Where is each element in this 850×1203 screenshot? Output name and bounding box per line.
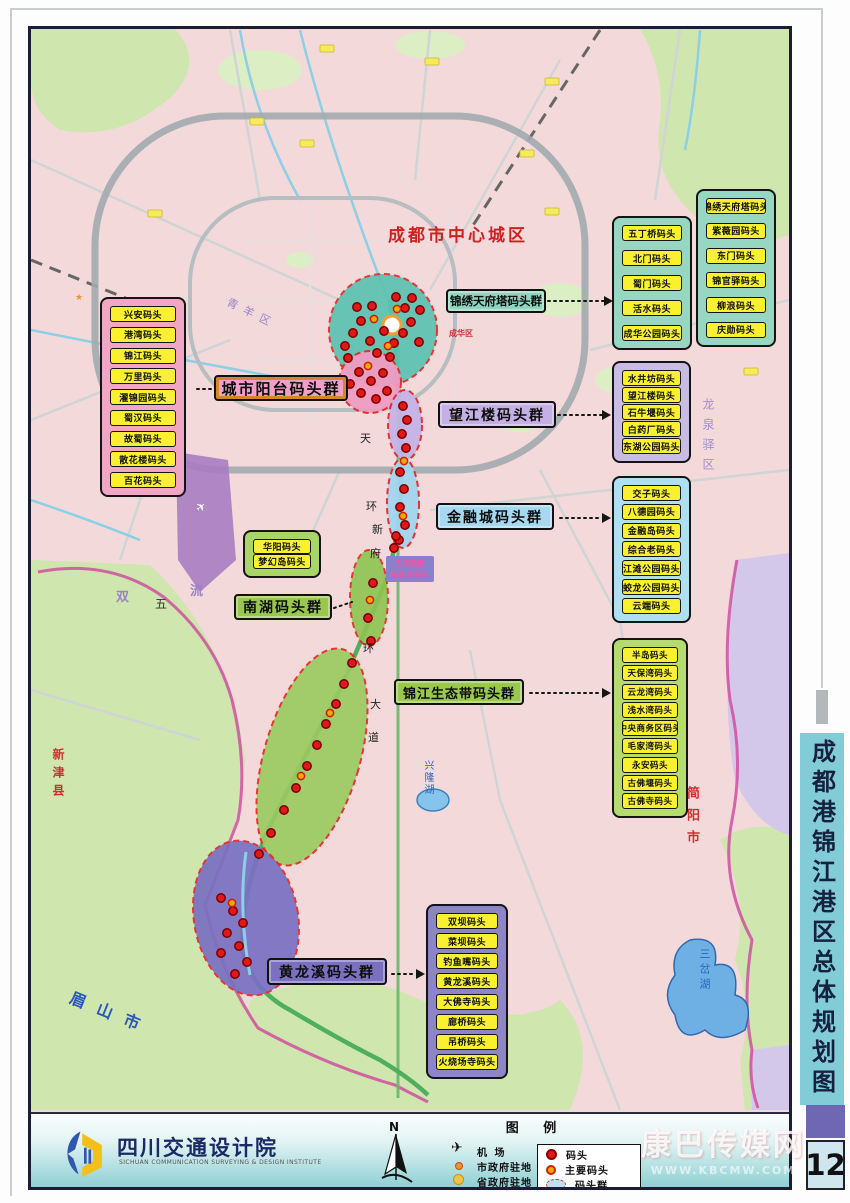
dock-item: 梦幻岛码头 (253, 554, 311, 569)
legend-row-dock-group: 码头群 (546, 1177, 632, 1192)
dock-marker (380, 327, 388, 335)
publisher-subtitle: SICHUAN COMMUNICATION SURVEYING & DESIGN… (119, 1159, 322, 1166)
dock-marker (367, 637, 375, 645)
dock-list-huanglongxi: 双坝码头 菜坝码头 钓鱼嘴码头 黄龙溪码头 大佛寺码头 廊桥码头 吊桥码头 火烧… (426, 904, 508, 1079)
dock-item: 水井坊码头 (622, 370, 681, 386)
publisher-name: 四川交通设计院 (117, 1132, 278, 1162)
dock-marker (355, 368, 363, 376)
dock-item: 浅水湾码头 (622, 702, 678, 718)
legend-dock-label: 码头 (566, 1147, 588, 1162)
dock-marker (372, 395, 380, 403)
dock-marker (403, 416, 411, 424)
dock-marker (353, 303, 361, 311)
dock-item: 兴安码头 (110, 306, 176, 322)
dock-marker (340, 680, 348, 688)
dock-item: 故蜀码头 (110, 431, 176, 447)
dock-item: 华阳码头 (253, 539, 311, 554)
main-dock-marker (400, 457, 407, 464)
dock-marker (357, 317, 365, 325)
dock-list-jinxiu-b: 锦绣天府塔码头 紫薇园码头 东门码头 锦官驿码头 柳浪码头 庆勋码头 (696, 189, 776, 347)
dock-marker (303, 762, 311, 770)
dock-marker (341, 342, 349, 350)
group-label-nanhu: 南湖码头群 (234, 594, 332, 620)
dock-marker (344, 354, 352, 362)
dock-item: 锦江码头 (110, 348, 176, 364)
dock-item: 钓鱼嘴码头 (436, 953, 498, 969)
xinglong-lake (417, 789, 449, 811)
dock-item: 江滩公园码头 (622, 560, 681, 576)
dock-marker (400, 485, 408, 493)
dock-item: 锦官驿码头 (706, 272, 766, 288)
dock-marker (383, 387, 391, 395)
dock-list-nanhu: 华阳码头 梦幻岛码头 (243, 530, 321, 578)
group-label-huanglongxi: 黄龙溪码头群 (267, 958, 387, 985)
dock-item: 火烧场寺码头 (436, 1054, 498, 1070)
dock-marker (402, 444, 410, 452)
legend-dock-group-label: 码头群 (575, 1177, 608, 1192)
dock-marker (407, 318, 415, 326)
dock-marker (373, 349, 381, 357)
page-border-right (821, 8, 823, 688)
dock-item: 紫薇园码头 (706, 223, 766, 239)
dock-item: 石牛堰码头 (622, 404, 681, 420)
dock-item: 八德园码头 (622, 504, 681, 520)
dock-group-ellipse (546, 1179, 566, 1190)
main-dock-marker (393, 305, 400, 312)
dock-item: 古佛堰码头 (622, 775, 678, 791)
dock-marker (217, 949, 225, 957)
main-dock-marker (366, 596, 373, 603)
dock-marker (332, 700, 340, 708)
sidebar-purple-block (806, 1105, 845, 1138)
dock-marker (399, 402, 407, 410)
dock-marker (401, 521, 409, 529)
dock-item: 天保湾码头 (622, 665, 678, 681)
dock-item: 古佛寺码头 (622, 793, 678, 809)
dock-item: 双坝码头 (436, 913, 498, 929)
dock-marker (415, 338, 423, 346)
dock-item: 金融岛码头 (622, 523, 681, 539)
dock-marker (367, 377, 375, 385)
dock-list-jinxiu-a: 五丁桥码头 北门码头 蜀门码头 活水码头 成华公园码头 (612, 216, 692, 350)
dock-marker (255, 850, 263, 858)
dock-item: 港湾码头 (110, 327, 176, 343)
group-label-eco-belt: 锦江生态带码头群 (394, 679, 524, 705)
dock-marker (223, 929, 231, 937)
dock-marker (399, 329, 407, 337)
sidebar-title-strip: 成都港锦江港区总体规划图 (800, 733, 844, 1105)
dock-marker (313, 741, 321, 749)
legend-main-dock-label: 主要码头 (565, 1162, 609, 1177)
dock-item: 濯锦园码头 (110, 389, 176, 405)
dock-marker (243, 958, 251, 966)
dock-marker (292, 784, 300, 792)
dock-marker (408, 294, 416, 302)
dock-item: 中央商务区码头 (622, 720, 678, 736)
dock-marker (267, 829, 275, 837)
dock-item: 望江楼码头 (622, 387, 681, 403)
dock-item: 东湖公园码头 (622, 438, 681, 454)
dock-marker (322, 720, 330, 728)
legend-row-main-dock: 主要码头 (546, 1162, 632, 1177)
dock-marker (379, 369, 387, 377)
dock-marker (396, 503, 404, 511)
group-label-wangjianglou: 望江楼码头群 (438, 401, 556, 428)
dock-item: 毛家湾码头 (622, 738, 678, 754)
dock-item: 成华公园码头 (622, 325, 682, 341)
dock-item: 活水码头 (622, 300, 682, 316)
dock-item: 黄龙溪码头 (436, 973, 498, 989)
margin-marker (816, 690, 828, 724)
dock-marker (369, 579, 377, 587)
dock-item: 交子码头 (622, 485, 681, 501)
dock-marker (398, 430, 406, 438)
dock-marker (392, 293, 400, 301)
page-border-top (10, 8, 822, 10)
main-dock-marker (384, 342, 391, 349)
legend-title: 图 例 (461, 1117, 611, 1136)
dock-item: 蜀门码头 (622, 275, 682, 291)
dock-marker (416, 306, 424, 314)
dock-marker (229, 907, 237, 915)
map-sheet-title: 成都港锦江港区总体规划图 (805, 739, 840, 1099)
dock-list-city-balcony: 兴安码头 港湾码头 锦江码头 万里码头 濯锦园码头 蜀汉码头 故蜀码头 散花楼码… (100, 297, 186, 497)
dock-item: 大佛寺码头 (436, 994, 498, 1010)
dock-item: 庆勋码头 (706, 322, 766, 338)
dock-marker (348, 659, 356, 667)
dock-marker (368, 302, 376, 310)
dock-list-financial-city: 交子码头 八德园码头 金融岛码头 综合老码头 江滩公园码头 蛟龙公园码头 云端码… (612, 476, 691, 623)
main-dock-marker (399, 512, 406, 519)
dock-item: 柳浪码头 (706, 297, 766, 313)
dock-marker (217, 894, 225, 902)
dock-marker (364, 614, 372, 622)
legend-airport-label: 机 场 (477, 1144, 506, 1159)
dock-list-eco-belt: 半岛码头 天保湾码头 云龙湾码头 浅水湾码头 中央商务区码头 毛家湾码头 永安码… (612, 638, 688, 818)
dock-marker (390, 544, 398, 552)
dock-item: 北门码头 (622, 250, 682, 266)
main-dock-marker (228, 899, 235, 906)
dock-marker (357, 389, 365, 397)
dock-legend-box: 码头 主要码头 码头群 (537, 1144, 641, 1190)
dock-item: 万里码头 (110, 368, 176, 384)
dock-item: 五丁桥码头 (622, 225, 682, 241)
main-dock-marker (370, 315, 377, 322)
dock-marker (239, 919, 247, 927)
main-dock-marker (326, 709, 333, 716)
main-dock-marker (297, 772, 304, 779)
dock-item: 云龙湾码头 (622, 684, 678, 700)
dock-item: 半岛码头 (622, 647, 678, 663)
dock-item: 散花楼码头 (110, 451, 176, 467)
airport-icon: ✈ (451, 1140, 463, 1156)
dock-item: 廊桥码头 (436, 1014, 498, 1030)
dock-marker (386, 353, 394, 361)
legend-prov-gov-label: 省政府驻地 (477, 1174, 532, 1189)
group-label-city-balcony: 城市阳台码头群 (214, 375, 348, 401)
main-dock-dot (546, 1165, 556, 1175)
dock-item: 锦绣天府塔码头 (706, 198, 766, 214)
dock-item: 白药厂码头 (622, 421, 681, 437)
page-number: 12 (806, 1140, 845, 1190)
page-border-left (10, 8, 12, 1196)
dock-marker (349, 329, 357, 337)
dock-item: 吊桥码头 (436, 1034, 498, 1050)
publisher-logo-icon (57, 1128, 111, 1178)
dock-marker (231, 970, 239, 978)
city-gov-dot (455, 1162, 463, 1170)
dock-item: 东门码头 (706, 248, 766, 264)
dock-marker (235, 942, 243, 950)
dock-marker (392, 532, 400, 540)
dock-marker (401, 304, 409, 312)
main-dock-marker (364, 362, 371, 369)
dock-item: 蛟龙公园码头 (622, 579, 681, 595)
dock-dot (546, 1149, 557, 1160)
legend-band: 四川交通设计院 SICHUAN COMMUNICATION SURVEYING … (31, 1112, 789, 1187)
dock-item: 菜坝码头 (436, 933, 498, 949)
dock-item: 综合老码头 (622, 541, 681, 557)
scanned-planning-map-page: ★ 成都市中心城区 成华区 青羊区 龙泉驿区 双 流 五 新津县 眉山市 简阳市… (0, 0, 850, 1203)
legend-row-dock: 码头 (546, 1147, 632, 1162)
legend-city-gov-label: 市政府驻地 (477, 1159, 532, 1174)
dock-item: 蜀汉码头 (110, 410, 176, 426)
dock-marker (366, 337, 374, 345)
gov-seat-star: ★ (75, 293, 83, 303)
dock-marker (396, 468, 404, 476)
north-arrow-icon (376, 1132, 420, 1186)
dock-marker (280, 806, 288, 814)
dock-list-wangjianglou: 水井坊码头 望江楼码头 石牛堰码头 白药厂码头 东湖公园码头 (612, 361, 691, 463)
prov-gov-dot (453, 1174, 464, 1185)
group-label-jinxiu: 锦绣天府塔码头群 (446, 289, 546, 313)
dock-item: 百花码头 (110, 472, 176, 488)
dock-item: 永安码头 (622, 757, 678, 773)
dock-item: 云端码头 (622, 598, 681, 614)
group-label-financial-city: 金融城码头群 (436, 503, 554, 530)
